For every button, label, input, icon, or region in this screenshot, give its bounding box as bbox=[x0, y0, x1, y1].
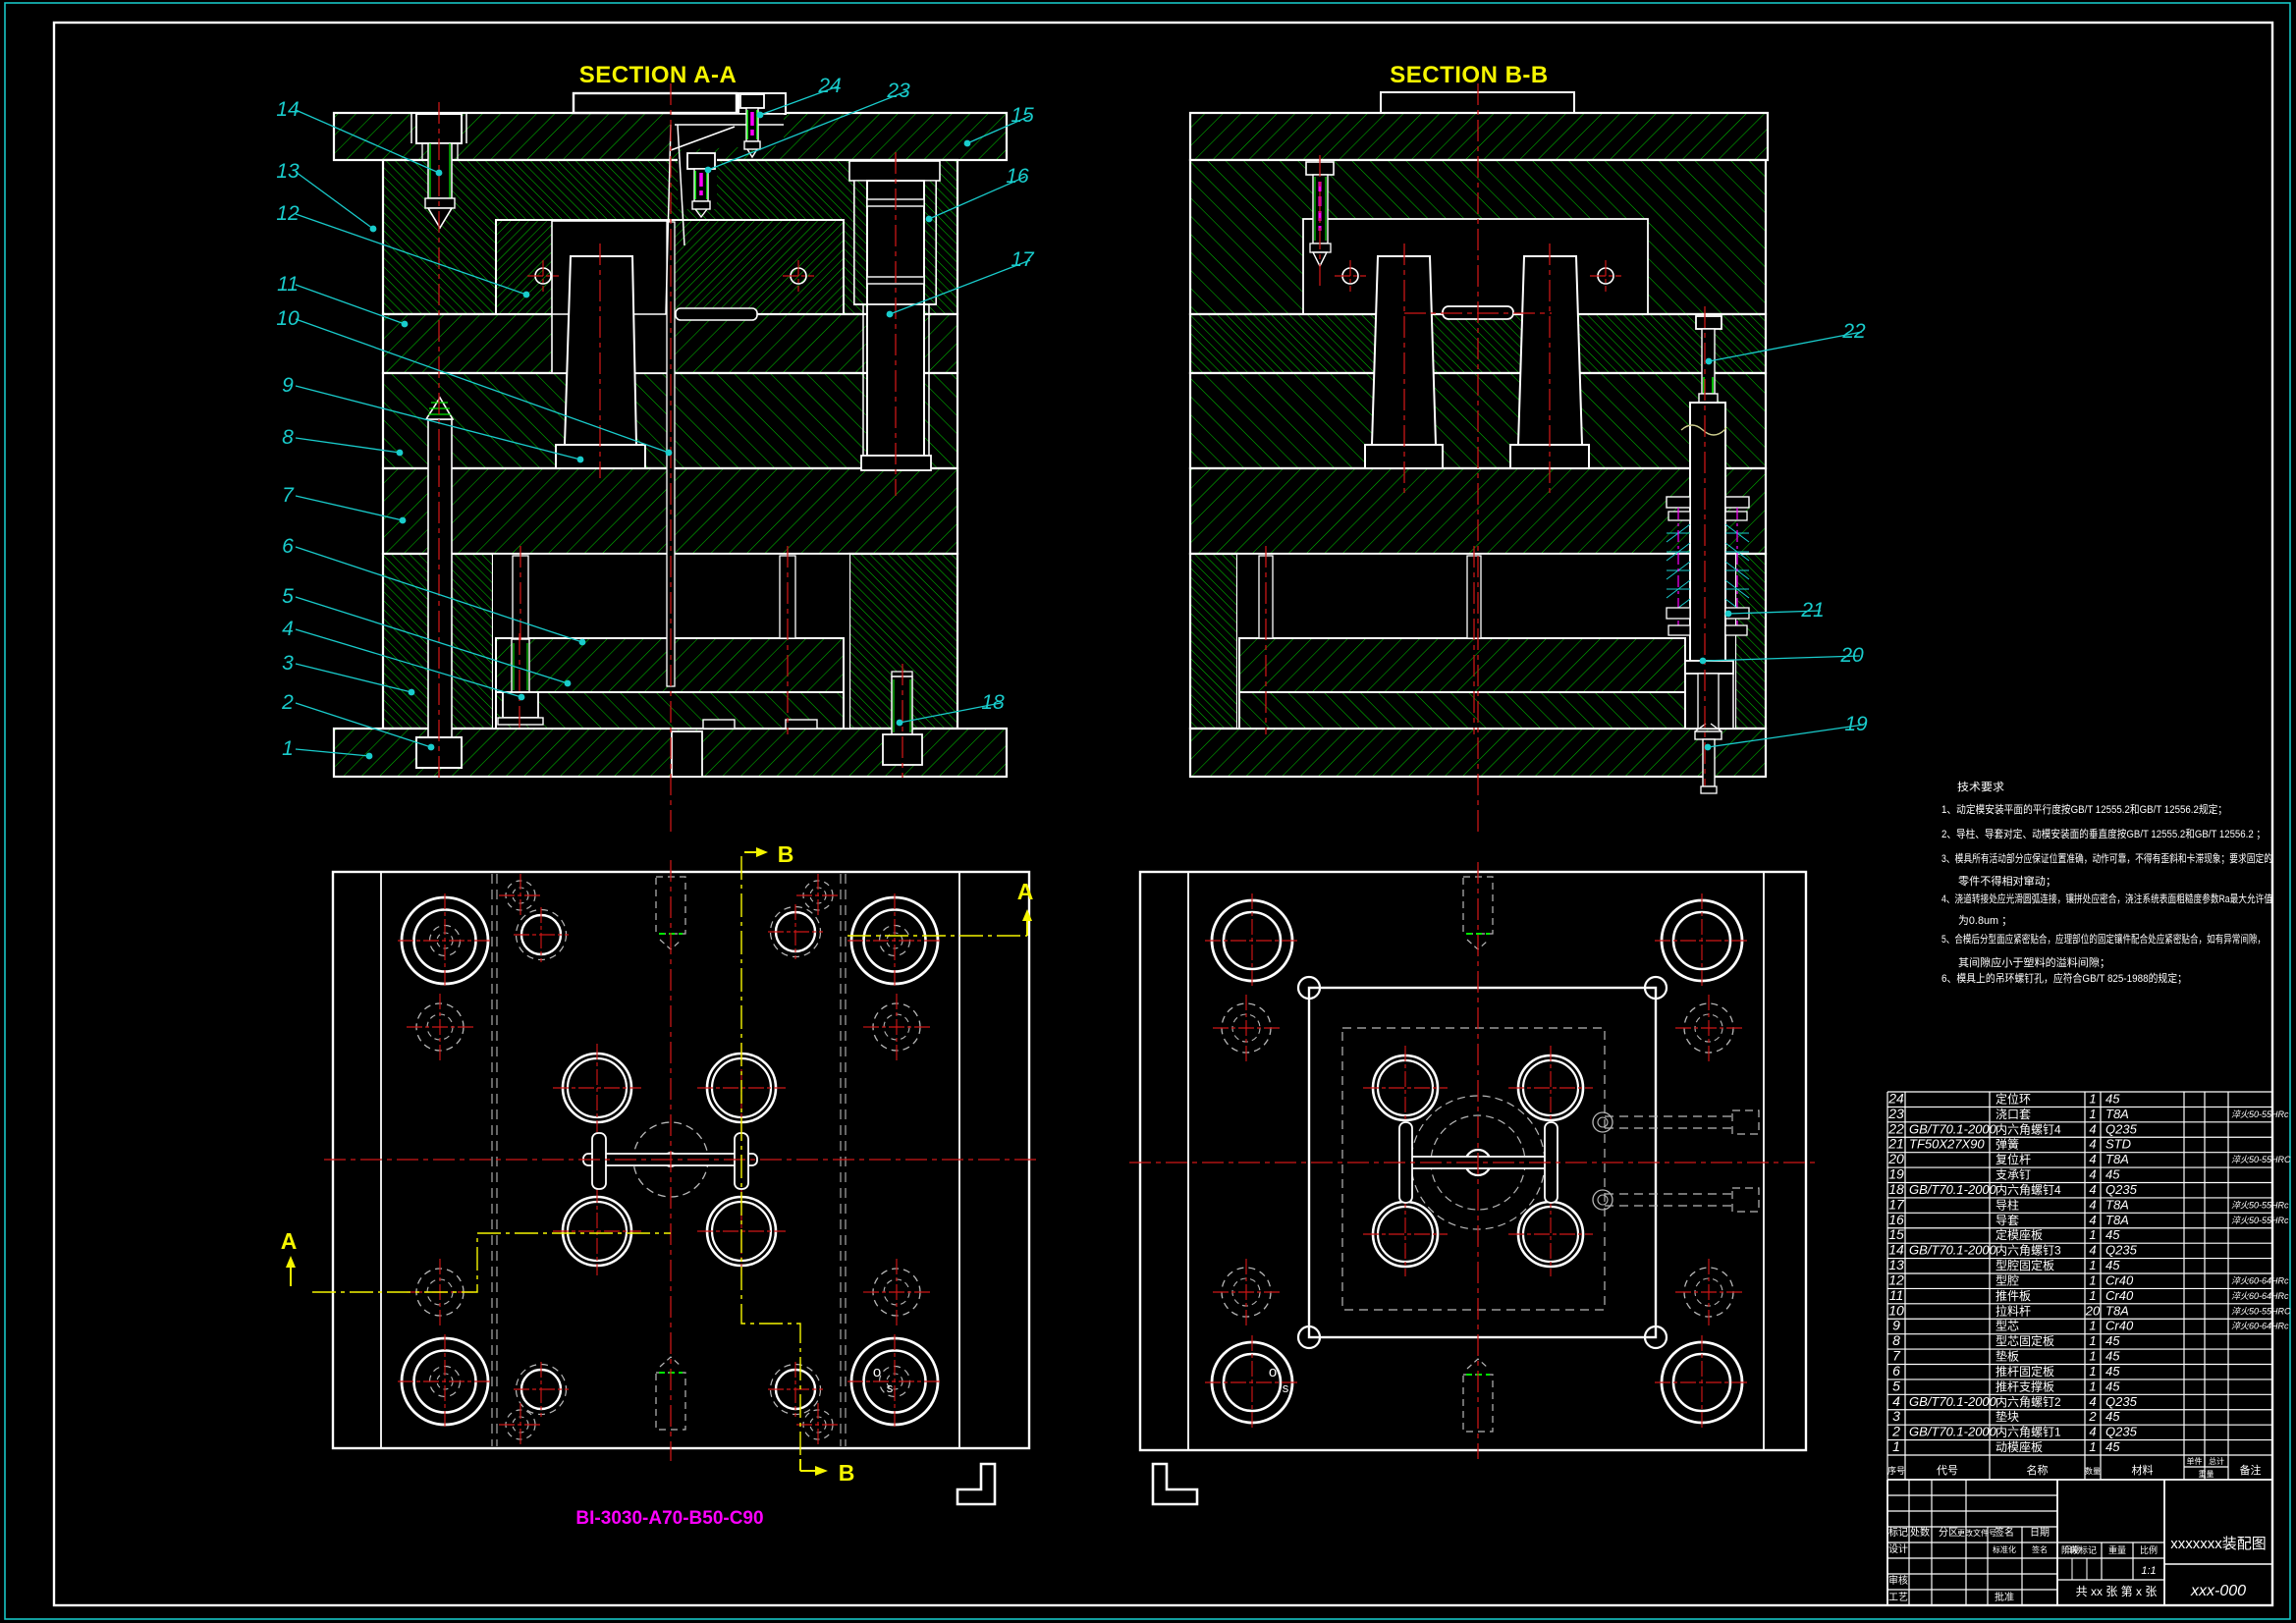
svg-text:7: 7 bbox=[282, 484, 295, 507]
svg-text:3、模具所有活动部分应保证位置准确，动作可靠，不得有歪斜和卡: 3、模具所有活动部分应保证位置准确，动作可靠，不得有歪斜和卡滞现象；要求固定的 bbox=[1941, 851, 2272, 865]
svg-text:Q235: Q235 bbox=[2105, 1425, 2138, 1439]
svg-text:更改文件号: 更改文件号 bbox=[1957, 1528, 1996, 1538]
svg-text:标准化: 标准化 bbox=[1993, 1544, 2016, 1554]
svg-text:T8A: T8A bbox=[2105, 1152, 2129, 1166]
svg-text:淬火50-55HRC: 淬火50-55HRC bbox=[2231, 1306, 2291, 1316]
svg-text:4: 4 bbox=[282, 618, 294, 640]
svg-text:1: 1 bbox=[2089, 1333, 2096, 1348]
svg-text:内六角螺钉1: 内六角螺钉1 bbox=[1995, 1426, 2061, 1439]
svg-text:内六角螺钉3: 内六角螺钉3 bbox=[1995, 1244, 2061, 1258]
svg-text:GB/T70.1-2000: GB/T70.1-2000 bbox=[1909, 1182, 1997, 1197]
svg-text:45: 45 bbox=[2105, 1364, 2120, 1379]
svg-text:内六角螺钉4: 内六角螺钉4 bbox=[1995, 1122, 2061, 1136]
svg-text:T8A: T8A bbox=[2105, 1213, 2129, 1227]
svg-text:Q235: Q235 bbox=[2105, 1182, 2138, 1197]
svg-text:1: 1 bbox=[2089, 1227, 2096, 1242]
svg-text:2: 2 bbox=[2088, 1409, 2097, 1424]
svg-text:材料: 材料 bbox=[2132, 1463, 2154, 1477]
svg-text:45: 45 bbox=[2105, 1333, 2120, 1348]
svg-text:1: 1 bbox=[2089, 1439, 2096, 1454]
svg-text:1: 1 bbox=[2089, 1091, 2096, 1106]
svg-text:19: 19 bbox=[1844, 713, 1868, 735]
svg-text:GB/T70.1-2000: GB/T70.1-2000 bbox=[1909, 1121, 1997, 1136]
svg-text:垫板: 垫板 bbox=[1995, 1349, 2019, 1364]
svg-text:GB/T70.1-2000: GB/T70.1-2000 bbox=[1909, 1243, 1997, 1258]
svg-text:B: B bbox=[839, 1460, 855, 1486]
svg-text:1: 1 bbox=[2089, 1364, 2096, 1379]
svg-text:浇口套: 浇口套 bbox=[1995, 1108, 2031, 1121]
svg-text:审核: 审核 bbox=[1888, 1574, 1908, 1587]
svg-text:10: 10 bbox=[276, 307, 300, 330]
svg-text:TF50X27X90: TF50X27X90 bbox=[1909, 1137, 1985, 1152]
svg-text:24: 24 bbox=[817, 75, 841, 97]
svg-text:20: 20 bbox=[2085, 1303, 2101, 1318]
svg-text:1: 1 bbox=[2089, 1107, 2096, 1121]
svg-text:T8A: T8A bbox=[2105, 1303, 2129, 1318]
svg-text:推件板: 推件板 bbox=[1995, 1289, 2031, 1303]
svg-text:16: 16 bbox=[1888, 1212, 1904, 1227]
svg-text:45: 45 bbox=[2105, 1349, 2120, 1364]
svg-text:型芯: 型芯 bbox=[1995, 1320, 2019, 1333]
svg-text:1: 1 bbox=[2089, 1349, 2096, 1364]
svg-text:3: 3 bbox=[282, 652, 294, 675]
svg-text:定模座板: 定模座板 bbox=[1995, 1227, 2043, 1242]
svg-text:1:1: 1:1 bbox=[2141, 1565, 2156, 1577]
svg-text:1: 1 bbox=[2089, 1258, 2096, 1272]
svg-text:45: 45 bbox=[2105, 1379, 2120, 1393]
svg-text:18: 18 bbox=[981, 691, 1005, 714]
svg-text:6: 6 bbox=[282, 535, 294, 558]
svg-text:复位杆: 复位杆 bbox=[1995, 1152, 2031, 1166]
svg-text:推杆支撑板: 推杆支撑板 bbox=[1995, 1379, 2054, 1393]
svg-text:名称: 名称 bbox=[2027, 1463, 2049, 1477]
svg-text:6: 6 bbox=[1892, 1363, 1900, 1379]
svg-text:型腔固定板: 型腔固定板 bbox=[1995, 1258, 2054, 1272]
svg-text:淬火50-55HRC: 淬火50-55HRC bbox=[2231, 1155, 2291, 1164]
svg-text:SECTION B-B: SECTION B-B bbox=[1390, 62, 1549, 88]
svg-text:A: A bbox=[281, 1228, 298, 1254]
svg-text:1、动定模安装平面的平行度按GB/T 12555.2和GB/: 1、动定模安装平面的平行度按GB/T 12555.2和GB/T 12556.2规… bbox=[1941, 802, 2227, 816]
svg-text:分区: 分区 bbox=[1939, 1527, 1958, 1539]
svg-text:13: 13 bbox=[276, 160, 300, 183]
svg-text:B: B bbox=[778, 841, 794, 867]
svg-text:s: s bbox=[1283, 1380, 1289, 1395]
svg-text:4: 4 bbox=[2089, 1152, 2096, 1166]
svg-text:工艺: 工艺 bbox=[1888, 1592, 1908, 1603]
svg-text:Q235: Q235 bbox=[2105, 1121, 2138, 1136]
svg-text:SECTION A-A: SECTION A-A bbox=[579, 62, 738, 88]
svg-text:6、模具上的吊环螺钉孔，应符合GB/T 825-1988的规: 6、模具上的吊环螺钉孔，应符合GB/T 825-1988的规定； bbox=[1941, 971, 2187, 985]
svg-text:重量: 重量 bbox=[2108, 1544, 2126, 1555]
svg-text:Cr40: Cr40 bbox=[2105, 1288, 2134, 1303]
svg-text:垫块: 垫块 bbox=[1995, 1409, 2019, 1424]
svg-text:7: 7 bbox=[1892, 1348, 1901, 1364]
svg-text:导套: 导套 bbox=[1995, 1214, 2019, 1227]
svg-text:BI-3030-A70-B50-C90: BI-3030-A70-B50-C90 bbox=[575, 1508, 763, 1529]
svg-text:4: 4 bbox=[2089, 1182, 2096, 1197]
svg-text:2: 2 bbox=[281, 691, 294, 714]
svg-text:19: 19 bbox=[1888, 1166, 1904, 1182]
svg-text:9: 9 bbox=[282, 374, 294, 397]
svg-text:4、浇道转接处应光滑圆弧连接，镶拼处应密合，浇注系统表面粗糙: 4、浇道转接处应光滑圆弧连接，镶拼处应密合，浇注系统表面粗糙度参数Ra最大允许值 bbox=[1941, 892, 2272, 905]
svg-text:4: 4 bbox=[2089, 1197, 2096, 1212]
svg-text:8: 8 bbox=[282, 426, 294, 449]
svg-text:淬火60-64HRc: 淬火60-64HRc bbox=[2231, 1291, 2289, 1301]
svg-text:Q235: Q235 bbox=[2105, 1243, 2138, 1258]
svg-text:10: 10 bbox=[1888, 1302, 1904, 1318]
svg-text:9: 9 bbox=[1892, 1318, 1900, 1333]
svg-text:23: 23 bbox=[1887, 1106, 1904, 1121]
svg-text:3: 3 bbox=[1892, 1408, 1900, 1424]
svg-text:1: 1 bbox=[282, 737, 294, 760]
svg-text:1: 1 bbox=[2089, 1319, 2096, 1333]
svg-text:淬火60-64HRc: 淬火60-64HRc bbox=[2231, 1322, 2289, 1331]
svg-text:比例: 比例 bbox=[2140, 1544, 2158, 1555]
svg-text:13: 13 bbox=[1888, 1257, 1904, 1272]
svg-text:T8A: T8A bbox=[2105, 1197, 2129, 1212]
svg-text:22: 22 bbox=[1841, 320, 1866, 343]
svg-text:内六角螺钉4: 内六角螺钉4 bbox=[1995, 1183, 2061, 1197]
svg-text:处数: 处数 bbox=[1910, 1526, 1930, 1539]
svg-text:45: 45 bbox=[2105, 1409, 2120, 1424]
svg-text:1: 1 bbox=[2089, 1272, 2096, 1287]
svg-text:序号: 序号 bbox=[1887, 1465, 1905, 1476]
svg-text:签名: 签名 bbox=[1995, 1526, 2014, 1539]
svg-text:14: 14 bbox=[276, 98, 299, 121]
svg-text:GB/T70.1-2000: GB/T70.1-2000 bbox=[1909, 1394, 1997, 1409]
svg-text:型腔: 型腔 bbox=[1995, 1272, 2019, 1287]
svg-text:o: o bbox=[873, 1364, 881, 1380]
svg-text:s: s bbox=[887, 1380, 894, 1395]
svg-text:14: 14 bbox=[1888, 1242, 1904, 1258]
svg-text:22: 22 bbox=[1887, 1120, 1904, 1136]
svg-text:16: 16 bbox=[1006, 165, 1029, 188]
svg-text:4: 4 bbox=[2089, 1243, 2096, 1258]
svg-text:Q235: Q235 bbox=[2105, 1394, 2138, 1409]
svg-text:1: 1 bbox=[2089, 1288, 2096, 1303]
svg-text:弹簧: 弹簧 bbox=[1995, 1137, 2019, 1152]
svg-text:45: 45 bbox=[2105, 1091, 2120, 1106]
svg-text:总计: 总计 bbox=[2209, 1456, 2224, 1466]
svg-text:4: 4 bbox=[2089, 1213, 2096, 1227]
svg-text:2: 2 bbox=[1891, 1424, 1900, 1439]
svg-text:淬火60-64HRc: 淬火60-64HRc bbox=[2231, 1275, 2289, 1285]
svg-text:GB/T70.1-2000: GB/T70.1-2000 bbox=[1909, 1425, 1997, 1439]
svg-text:5、合模后分型面应紧密贴合，应理部位的固定镶件配合处应紧密贴: 5、合模后分型面应紧密贴合，应理部位的固定镶件配合处应紧密贴合，如有异常间隙， bbox=[1941, 932, 2266, 946]
svg-text:21: 21 bbox=[1800, 599, 1824, 622]
svg-text:4: 4 bbox=[2089, 1137, 2096, 1152]
svg-text:重量: 重量 bbox=[2199, 1469, 2214, 1479]
svg-text:5: 5 bbox=[1892, 1378, 1900, 1393]
svg-text:12: 12 bbox=[1888, 1271, 1904, 1287]
svg-text:1: 1 bbox=[2089, 1379, 2096, 1393]
svg-text:45: 45 bbox=[2105, 1439, 2120, 1454]
svg-text:20: 20 bbox=[1887, 1151, 1904, 1166]
svg-text:型芯固定板: 型芯固定板 bbox=[1995, 1333, 2054, 1348]
svg-text:8: 8 bbox=[1892, 1332, 1900, 1348]
svg-text:45: 45 bbox=[2105, 1167, 2120, 1182]
svg-text:日期: 日期 bbox=[2030, 1527, 2050, 1539]
svg-text:23: 23 bbox=[886, 80, 910, 102]
svg-text:其间隙应小于塑料的溢料间隙；: 其间隙应小于塑料的溢料间隙； bbox=[1958, 955, 2110, 969]
svg-text:12: 12 bbox=[276, 202, 300, 225]
svg-text:定位环: 定位环 bbox=[1995, 1091, 2031, 1106]
svg-text:o: o bbox=[1269, 1364, 1277, 1380]
svg-text:淬火50-55HRc: 淬火50-55HRc bbox=[2231, 1216, 2289, 1225]
svg-text:Cr40: Cr40 bbox=[2105, 1319, 2134, 1333]
svg-text:45: 45 bbox=[2105, 1227, 2120, 1242]
svg-text:共 xx 张 第 x 张: 共 xx 张 第 x 张 bbox=[2076, 1585, 2158, 1598]
svg-text:24: 24 bbox=[1887, 1090, 1904, 1106]
svg-text:4: 4 bbox=[2089, 1121, 2096, 1136]
svg-text:推杆固定板: 推杆固定板 bbox=[1995, 1364, 2054, 1379]
svg-text:批准: 批准 bbox=[1995, 1591, 2014, 1603]
svg-text:设计: 设计 bbox=[1888, 1542, 1908, 1555]
svg-text:代号: 代号 bbox=[1937, 1464, 1958, 1477]
svg-text:4: 4 bbox=[2089, 1167, 2096, 1182]
svg-text:xxxxxxx装配图: xxxxxxx装配图 bbox=[2170, 1536, 2267, 1552]
svg-text:备注: 备注 bbox=[2240, 1463, 2262, 1477]
svg-text:淬火50-55HRc: 淬火50-55HRc bbox=[2231, 1200, 2289, 1210]
svg-text:导柱: 导柱 bbox=[1995, 1197, 2019, 1212]
svg-text:15: 15 bbox=[1011, 104, 1034, 127]
svg-text:为0.8um ；: 为0.8um ； bbox=[1958, 914, 2012, 927]
svg-text:4: 4 bbox=[1892, 1393, 1900, 1409]
svg-text:xxx-000: xxx-000 bbox=[2190, 1583, 2246, 1599]
svg-text:15: 15 bbox=[1888, 1226, 1904, 1242]
svg-text:技术要求: 技术要求 bbox=[1957, 781, 2004, 793]
svg-text:11: 11 bbox=[277, 273, 299, 296]
svg-text:17: 17 bbox=[1011, 248, 1035, 271]
svg-text:拉料杆: 拉料杆 bbox=[1995, 1303, 2031, 1318]
svg-text:数量: 数量 bbox=[2085, 1466, 2101, 1476]
svg-text:17: 17 bbox=[1888, 1196, 1905, 1212]
svg-text:单件: 单件 bbox=[2187, 1456, 2203, 1466]
svg-text:标记: 标记 bbox=[1888, 1527, 1908, 1539]
svg-text:支承钉: 支承钉 bbox=[1995, 1168, 2031, 1182]
svg-text:5: 5 bbox=[282, 585, 294, 608]
svg-text:签名: 签名 bbox=[2032, 1544, 2048, 1554]
svg-text:45: 45 bbox=[2105, 1258, 2120, 1272]
svg-text:零件不得相对窜动；: 零件不得相对窜动； bbox=[1958, 874, 2056, 888]
svg-text:2、导柱、导套对定、动模安装面的垂直度按GB/T 12555: 2、导柱、导套对定、动模安装面的垂直度按GB/T 12555.2和GB/T 12… bbox=[1941, 827, 2266, 840]
svg-text:STD: STD bbox=[2105, 1137, 2131, 1152]
svg-text:Cr40: Cr40 bbox=[2105, 1272, 2134, 1287]
svg-text:淬火50-55HRc: 淬火50-55HRc bbox=[2231, 1109, 2289, 1119]
svg-text:20: 20 bbox=[1839, 644, 1864, 667]
svg-text:1: 1 bbox=[1892, 1438, 1900, 1454]
svg-text:T8A: T8A bbox=[2105, 1107, 2129, 1121]
svg-text:11: 11 bbox=[1889, 1287, 1904, 1303]
svg-text:4: 4 bbox=[2089, 1394, 2096, 1409]
svg-text:21: 21 bbox=[1887, 1136, 1904, 1152]
svg-text:A: A bbox=[1017, 879, 1034, 904]
svg-text:阶段标记: 阶段标记 bbox=[2061, 1544, 2097, 1555]
svg-text:内六角螺钉2: 内六角螺钉2 bbox=[1995, 1395, 2061, 1409]
svg-text:18: 18 bbox=[1888, 1181, 1904, 1197]
svg-text:4: 4 bbox=[2089, 1425, 2096, 1439]
svg-text:动模座板: 动模座板 bbox=[1995, 1439, 2043, 1454]
